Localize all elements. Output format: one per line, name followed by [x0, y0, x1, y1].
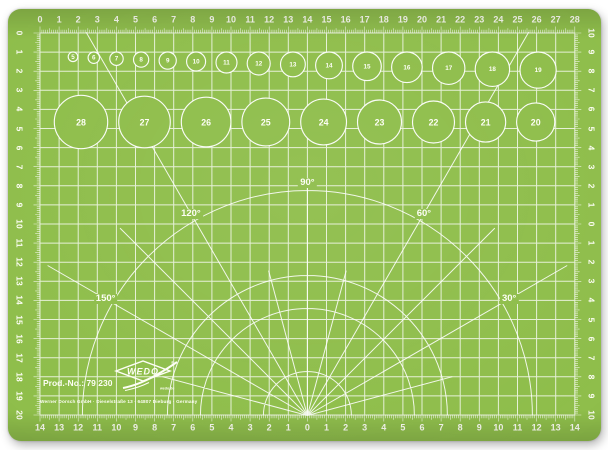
right-ruler-number: 8	[587, 374, 596, 379]
right-ruler-number: 3	[587, 279, 596, 284]
left-ruler-number: 13	[14, 277, 23, 286]
right-ruler-number: 9	[587, 394, 596, 399]
bottom-ruler-number: 9	[477, 423, 482, 432]
top-ruler-number: 7	[171, 15, 176, 24]
left-ruler-number: 4	[14, 107, 23, 112]
wedo-logo: WEDO ® wedo.de	[113, 356, 185, 394]
left-ruler-number: 8	[14, 183, 23, 188]
right-ruler-number: 4	[587, 145, 596, 150]
bottom-ruler-number: 6	[190, 423, 195, 432]
bottom-ruler-number: 6	[419, 423, 424, 432]
top-ruler-number: 21	[436, 15, 446, 24]
bottom-ruler-number: 2	[267, 423, 272, 432]
bottom-ruler-number: 5	[209, 423, 214, 432]
cutting-mat: 5678910111213141516171819282726252423222…	[8, 9, 601, 441]
right-ruler-number: 5	[587, 317, 596, 322]
left-ruler-number: 9	[14, 203, 23, 208]
right-ruler-number: 10	[587, 28, 596, 37]
angle-label: 30°	[500, 294, 518, 304]
right-ruler-number: 6	[587, 107, 596, 112]
right-ruler-number: 7	[587, 88, 596, 93]
right-ruler-number: 9	[587, 50, 596, 55]
bottom-ruler-number: 7	[439, 423, 444, 432]
left-ruler-number: 2	[14, 69, 23, 74]
right-ruler-number: 1	[587, 203, 596, 208]
manufacturer-address: Werner Dorsch GmbH · Dieselstraße 13 · 6…	[40, 399, 197, 404]
top-ruler-number: 3	[95, 15, 100, 24]
bottom-ruler-number: 11	[93, 423, 103, 432]
top-ruler-number: 4	[114, 15, 119, 24]
top-ruler-number: 28	[570, 15, 580, 24]
bottom-ruler-number: 12	[532, 423, 542, 432]
right-ruler-number: 5	[587, 126, 596, 131]
bottom-ruler-number: 8	[152, 423, 157, 432]
left-ruler-number: 10	[14, 219, 23, 228]
top-ruler-number: 6	[152, 15, 157, 24]
right-ruler-number: 7	[587, 355, 596, 360]
product-photo: 5678910111213141516171819282726252423222…	[0, 0, 608, 450]
top-ruler-number: 0	[37, 15, 42, 24]
bottom-ruler-number: 9	[133, 423, 138, 432]
left-ruler-number: 12	[14, 257, 23, 266]
bottom-ruler-number: 13	[54, 423, 64, 432]
bottom-ruler-number: 3	[362, 423, 367, 432]
top-ruler-number: 24	[493, 15, 503, 24]
left-ruler-number: 1	[14, 50, 23, 55]
left-ruler-number: 3	[14, 88, 23, 93]
bottom-ruler-number: 8	[458, 423, 463, 432]
angle-label: 150°	[94, 294, 118, 304]
top-ruler-number: 13	[283, 15, 293, 24]
right-ruler-number: 4	[587, 298, 596, 303]
right-ruler-number: 10	[587, 410, 596, 419]
left-ruler-number: 18	[14, 372, 23, 381]
bottom-ruler-number: 1	[324, 423, 329, 432]
bottom-ruler-number: 11	[513, 423, 523, 432]
angle-label: 90°	[298, 178, 316, 188]
top-ruler-number: 17	[360, 15, 370, 24]
top-ruler-number: 1	[57, 15, 62, 24]
top-ruler-number: 2	[76, 15, 81, 24]
right-ruler-number: 0	[587, 222, 596, 227]
bottom-ruler-number: 10	[111, 423, 121, 432]
left-ruler-number: 16	[14, 334, 23, 343]
top-ruler-number: 19	[398, 15, 408, 24]
left-ruler-number: 5	[14, 126, 23, 131]
top-ruler-number: 15	[321, 15, 331, 24]
bottom-ruler-number: 7	[171, 423, 176, 432]
left-ruler-number: 17	[14, 353, 23, 362]
bottom-ruler-number: 12	[73, 423, 83, 432]
left-ruler-number: 11	[14, 239, 23, 248]
branding-area: Prod.-No.: 79 230 WEDO ® wedo.de Werner …	[40, 355, 280, 407]
top-ruler-number: 5	[133, 15, 138, 24]
top-ruler-number: 8	[190, 15, 195, 24]
right-ruler-number: 6	[587, 336, 596, 341]
left-ruler-number: 7	[14, 164, 23, 169]
left-ruler-number: 15	[14, 315, 23, 324]
bottom-ruler-number: 0	[305, 423, 310, 432]
top-ruler-number: 23	[474, 15, 484, 24]
bottom-ruler-number: 14	[570, 423, 580, 432]
bottom-ruler-number: 1	[286, 423, 291, 432]
left-ruler-number: 14	[14, 296, 23, 305]
left-ruler-number: 0	[14, 31, 23, 36]
top-ruler-number: 22	[455, 15, 465, 24]
right-ruler-number: 1	[587, 241, 596, 246]
top-ruler-number: 25	[512, 15, 522, 24]
bottom-ruler-number: 3	[248, 423, 253, 432]
logo-website: wedo.de	[159, 387, 174, 391]
bottom-ruler-number: 2	[343, 423, 348, 432]
left-ruler-number: 20	[14, 410, 23, 419]
top-ruler-number: 18	[379, 15, 389, 24]
top-ruler-number: 12	[264, 15, 274, 24]
top-ruler-number: 14	[302, 15, 312, 24]
product-number: Prod.-No.: 79 230	[43, 378, 112, 388]
top-ruler-number: 10	[226, 15, 236, 24]
bottom-ruler-number: 5	[400, 423, 405, 432]
top-ruler-number: 9	[209, 15, 214, 24]
right-ruler-number: 2	[587, 183, 596, 188]
right-ruler-number: 2	[587, 260, 596, 265]
bottom-ruler-number: 14	[35, 423, 45, 432]
left-ruler-number: 19	[14, 391, 23, 400]
bottom-ruler-number: 4	[381, 423, 386, 432]
right-ruler-number: 8	[587, 69, 596, 74]
logo-wordmark: WEDO	[127, 367, 159, 377]
bottom-ruler-number: 13	[551, 423, 561, 432]
angle-label: 60°	[415, 209, 433, 219]
top-ruler-number: 26	[532, 15, 542, 24]
angle-label: 120°	[179, 209, 203, 219]
top-ruler-number: 11	[245, 15, 255, 24]
top-ruler-number: 27	[551, 15, 561, 24]
right-ruler-number: 3	[587, 164, 596, 169]
left-ruler-number: 6	[14, 145, 23, 150]
bottom-ruler-number: 4	[228, 423, 233, 432]
top-ruler-number: 16	[341, 15, 351, 24]
top-ruler-number: 20	[417, 15, 427, 24]
bottom-ruler-number: 10	[493, 423, 503, 432]
